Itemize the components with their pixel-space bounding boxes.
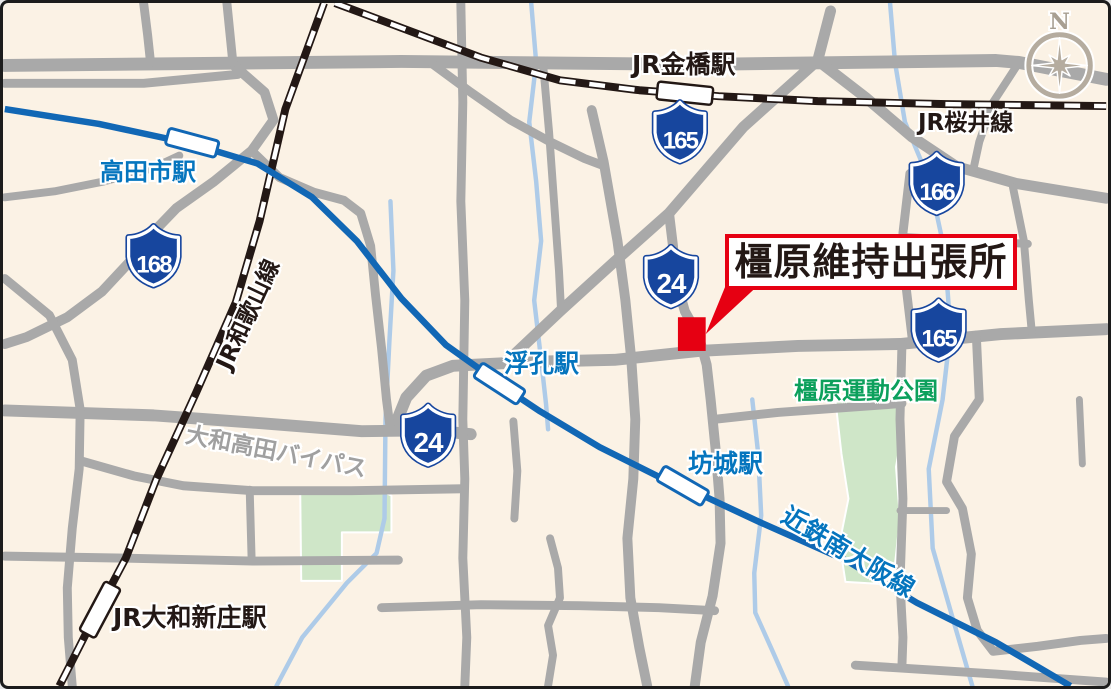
route-shield-165: 165 [914,301,964,360]
shield-number: 24 [414,427,444,458]
compass-rose: N [1029,9,1090,96]
road-left-connector [5,156,179,198]
road-top-stub-b [144,3,151,62]
park-kashihara-sports [836,401,903,583]
road-center-vertical [461,3,467,686]
road-southeast-wiggle [947,335,1107,651]
shield-number: 165 [663,127,699,154]
route-shield-168: 168 [129,226,179,285]
station-yamato-shinjo-rect [79,581,121,638]
station-yamato-shinjo [79,581,121,638]
road-center-vertical-b [543,64,561,308]
road-bypass-feeder [252,151,391,431]
callout-label: 橿原維持出張所 [725,234,1017,290]
shield-number: 24 [657,268,687,299]
road-south-wiggle [548,538,560,686]
station-kanahashi-rect [656,81,713,105]
road-top-stub-a [227,3,233,62]
river-center-south [752,400,788,686]
route-shield-24: 24 [403,406,453,465]
map-canvas: 1651661651682424N [3,3,1108,686]
road-northeast-connector [973,62,1019,169]
park-southwest [300,491,391,581]
road-southwest-jog [250,490,252,561]
station-takadashi [165,128,219,158]
shield-number: 166 [919,179,955,206]
road-southwest-link [81,461,463,491]
destination-square [678,317,706,351]
route-shield-24: 24 [646,247,696,306]
shield-number: 165 [921,326,957,353]
route-shield-166: 166 [912,154,962,213]
road-south-horizontal [382,605,715,611]
route-map: 1651661651682424N 高田市駅JR金橋駅JR桜井線JR和歌山線浮孔… [0,0,1111,689]
road-top-left-parallel [5,74,238,83]
road-southeast-horizontal [855,665,1106,682]
station-kanahashi [656,81,713,105]
station-bojo [656,466,709,506]
road-east-stub [1079,400,1082,464]
road-park-east [900,344,903,665]
road-south-left-horizontal [5,556,399,561]
shield-number: 168 [136,251,172,278]
route-shield-165: 165 [655,102,705,161]
road-center-vertical-c [592,110,648,686]
station-bojo-rect [656,466,709,506]
compass-n-label: N [1049,9,1070,35]
road-center-stub [513,421,517,518]
station-takadashi-rect [165,128,219,158]
railway-jr-wakayama [59,3,324,686]
callout-pointer [706,284,761,335]
